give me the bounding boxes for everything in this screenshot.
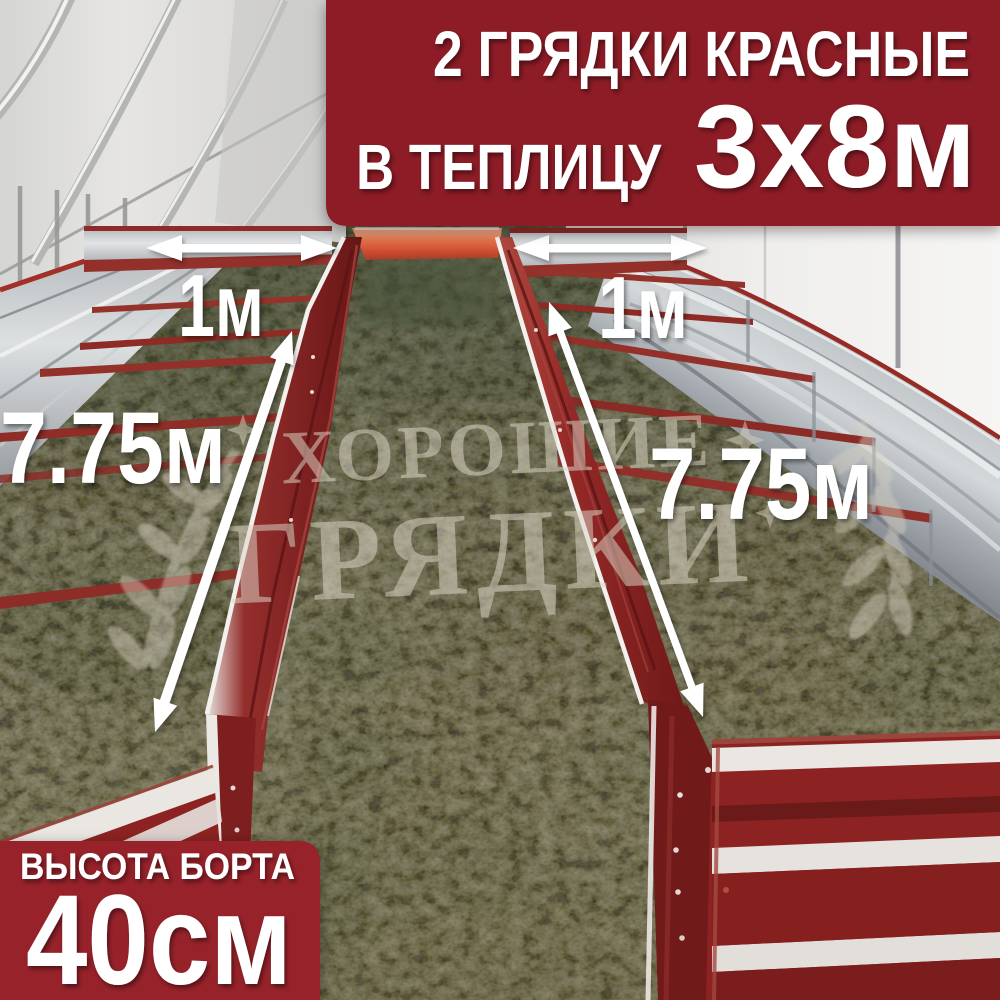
svg-text:7.75м: 7.75м [649,427,873,541]
svg-text:1м: 1м [178,256,264,355]
svg-text:40см: 40см [26,869,292,1000]
svg-text:7.75м: 7.75м [0,391,226,505]
svg-text:В ТЕПЛИЦУ: В ТЕПЛИЦУ [356,131,662,203]
svg-text:1м: 1м [598,258,688,357]
svg-text:3х8м: 3х8м [694,81,976,213]
svg-text:2 ГРЯДКИ КРАСНЫЕ: 2 ГРЯДКИ КРАСНЫЕ [433,18,970,90]
